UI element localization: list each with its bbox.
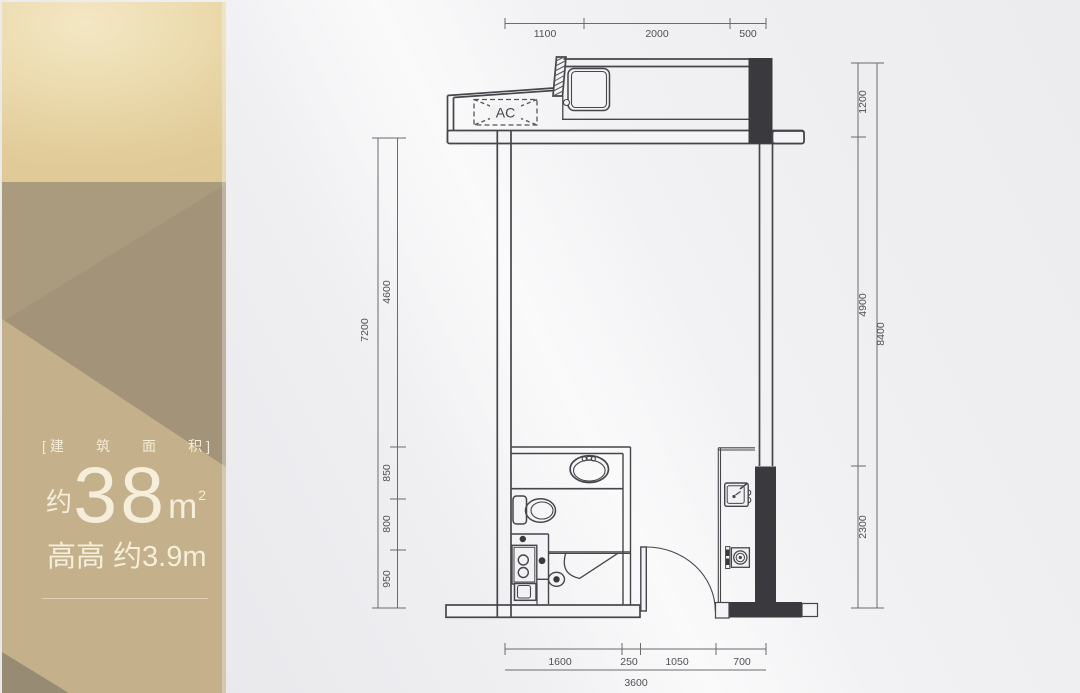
svg-text:AC: AC [496, 105, 515, 121]
svg-text:1100: 1100 [534, 28, 557, 40]
svg-text:700: 700 [733, 656, 751, 668]
svg-text:850: 850 [381, 464, 393, 482]
svg-text:950: 950 [381, 570, 393, 588]
svg-text:500: 500 [739, 28, 757, 40]
svg-text:2000: 2000 [645, 28, 669, 40]
svg-text:7200: 7200 [359, 318, 371, 342]
svg-text:3600: 3600 [624, 677, 648, 689]
svg-text:1050: 1050 [665, 656, 689, 668]
svg-text:4600: 4600 [381, 280, 393, 304]
svg-text:1600: 1600 [548, 656, 572, 668]
svg-text:250: 250 [620, 656, 638, 668]
svg-text:800: 800 [381, 515, 393, 533]
svg-text:8400: 8400 [875, 322, 887, 346]
svg-text:2300: 2300 [857, 515, 869, 539]
svg-text:1200: 1200 [857, 90, 869, 114]
svg-text:4900: 4900 [857, 293, 869, 317]
